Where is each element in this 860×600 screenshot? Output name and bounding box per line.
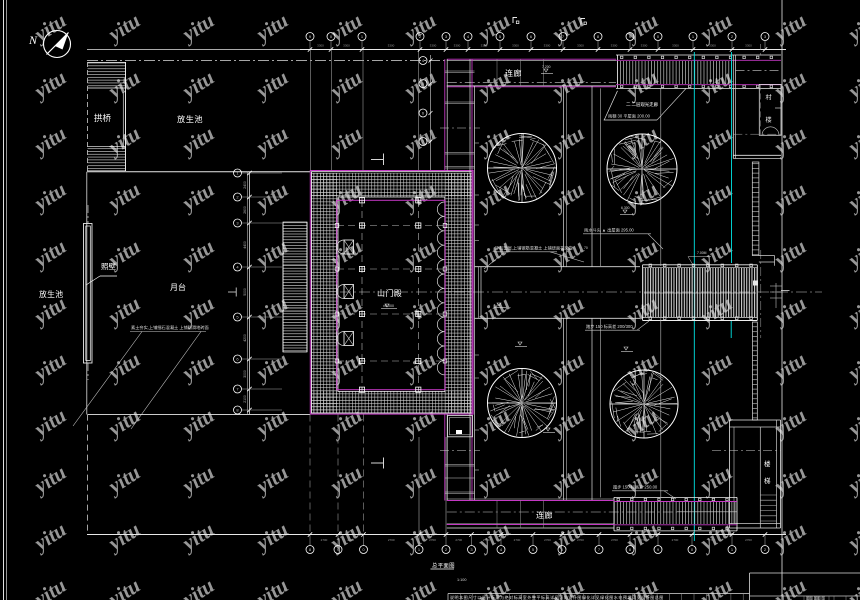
svg-text:照壁: 照壁 bbox=[101, 261, 116, 271]
svg-text:2700: 2700 bbox=[709, 538, 716, 542]
svg-text:梯: 梯 bbox=[764, 476, 771, 485]
svg-text:说明本图尺寸以米计标高为绝对标高室外整平标高详见竖向设计图绿: 说明本图尺寸以米计标高为绝对标高室外整平标高详见竖向设计图绿化详见绿化图水电预埋… bbox=[450, 594, 664, 600]
svg-text:3300: 3300 bbox=[454, 44, 461, 48]
svg-text:3300: 3300 bbox=[512, 44, 519, 48]
svg-text:连廊: 连廊 bbox=[536, 510, 553, 520]
svg-text:碎石垫层,上铺钢筋混凝土 上铺烧面花岗岩: 碎石垫层,上铺钢筋混凝土 上铺烧面花岗岩 bbox=[495, 245, 573, 252]
svg-text:3000: 3000 bbox=[243, 370, 247, 378]
svg-text:2700: 2700 bbox=[641, 538, 648, 542]
svg-text:7.200: 7.200 bbox=[542, 65, 551, 69]
svg-text:2700: 2700 bbox=[577, 538, 584, 542]
svg-text:2700: 2700 bbox=[388, 538, 395, 542]
svg-text:连廊: 连廊 bbox=[505, 68, 522, 78]
svg-text:3300: 3300 bbox=[481, 44, 488, 48]
svg-text:2700: 2700 bbox=[745, 538, 752, 542]
svg-text:素土夯实,上铺细石混凝土 上铺防滑地砖面: 素土夯实,上铺细石混凝土 上铺防滑地砖面 bbox=[131, 324, 209, 331]
svg-text:4200: 4200 bbox=[243, 334, 247, 342]
svg-text:2100: 2100 bbox=[243, 395, 247, 403]
svg-text:3300: 3300 bbox=[611, 44, 618, 48]
svg-text:2700: 2700 bbox=[544, 538, 551, 542]
svg-text:2600: 2600 bbox=[243, 206, 247, 214]
svg-text:3300: 3300 bbox=[388, 44, 395, 48]
svg-text:放生池: 放生池 bbox=[39, 289, 63, 299]
svg-text:4400: 4400 bbox=[243, 241, 247, 249]
svg-text:3300: 3300 bbox=[317, 44, 324, 48]
svg-text:楼: 楼 bbox=[764, 459, 771, 468]
svg-text:2400: 2400 bbox=[243, 181, 247, 189]
svg-text:图图 图图 图: 图图 图图 图 bbox=[806, 597, 825, 600]
svg-text:2700: 2700 bbox=[347, 538, 354, 542]
svg-text:3300: 3300 bbox=[430, 44, 437, 48]
svg-text:3300: 3300 bbox=[343, 44, 350, 48]
svg-text:楼: 楼 bbox=[766, 116, 772, 124]
svg-text:月台: 月台 bbox=[170, 282, 186, 292]
svg-text:2700: 2700 bbox=[321, 538, 328, 542]
svg-text:3300: 3300 bbox=[709, 44, 716, 48]
svg-text:放生池: 放生池 bbox=[177, 114, 203, 124]
svg-text:±0.000: ±0.000 bbox=[383, 304, 394, 308]
svg-text:3300: 3300 bbox=[672, 44, 679, 48]
svg-text:3300: 3300 bbox=[544, 44, 551, 48]
svg-text:5000: 5000 bbox=[243, 288, 247, 296]
svg-text:3300: 3300 bbox=[577, 44, 584, 48]
svg-text:1:100: 1:100 bbox=[457, 578, 467, 582]
svg-text:雨棚 30 平屋面 200.00: 雨棚 30 平屋面 200.00 bbox=[608, 112, 651, 119]
svg-text:2700: 2700 bbox=[455, 538, 462, 542]
svg-text:6.300: 6.300 bbox=[621, 206, 630, 210]
svg-text:拱桥: 拱桥 bbox=[94, 113, 112, 123]
svg-text:7.00M: 7.00M bbox=[697, 251, 707, 255]
svg-text:总平面图: 总平面图 bbox=[432, 561, 455, 569]
svg-text:3300: 3300 bbox=[745, 44, 752, 48]
svg-text:2700: 2700 bbox=[429, 538, 436, 542]
svg-text:2700: 2700 bbox=[514, 538, 521, 542]
svg-text:2700: 2700 bbox=[611, 538, 618, 542]
svg-text:N: N bbox=[28, 33, 38, 47]
svg-text:2700: 2700 bbox=[483, 538, 490, 542]
svg-text:2700: 2700 bbox=[672, 538, 679, 542]
svg-text:踏步 150 标高差 250.00: 踏步 150 标高差 250.00 bbox=[613, 484, 658, 491]
svg-text:踏步 150 标高差 200/300: 踏步 150 标高差 200/300 bbox=[586, 323, 633, 330]
svg-text:3300: 3300 bbox=[641, 44, 648, 48]
svg-text:雨水斗头 ▲ 出屋面 295.00: 雨水斗头 ▲ 出屋面 295.00 bbox=[584, 227, 634, 234]
svg-text:村: 村 bbox=[766, 94, 772, 102]
svg-text:山门殿: 山门殿 bbox=[377, 288, 402, 298]
svg-text:70: 70 bbox=[584, 246, 588, 250]
svg-text:二.二层观光走廊: 二.二层观光走廊 bbox=[626, 101, 659, 108]
